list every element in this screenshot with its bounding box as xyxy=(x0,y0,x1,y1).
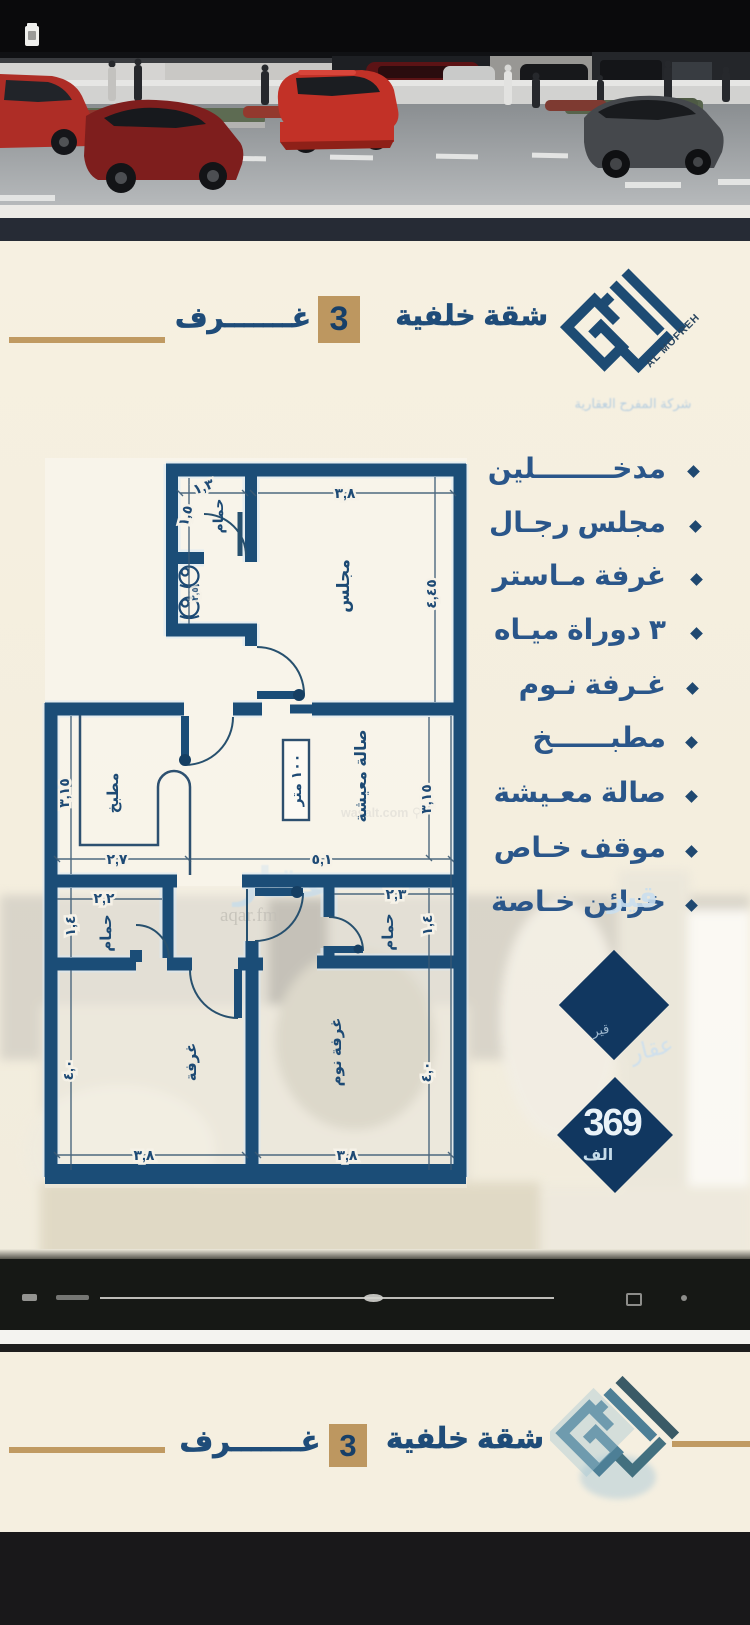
svg-text:حمام: حمام xyxy=(98,914,115,952)
svg-text:١٠٠ متر: ١٠٠ متر xyxy=(288,754,305,808)
svg-text:٣,١٥: ٣,١٥ xyxy=(56,778,72,808)
svg-text:صالة معيشة: صالة معيشة xyxy=(353,729,370,822)
svg-text:٣,١٥: ٣,١٥ xyxy=(418,784,434,814)
svg-text:٥,١: ٥,١ xyxy=(312,851,333,867)
svg-text:حمام: حمام xyxy=(380,913,397,951)
svg-text:١,٤: ١,٤ xyxy=(62,916,78,937)
svg-text:٤,٠: ٤,٠ xyxy=(60,1060,76,1081)
svg-text:٢,٣: ٢,٣ xyxy=(386,886,407,902)
svg-text:٣,٨: ٣,٨ xyxy=(335,485,356,501)
svg-text:٣,٨: ٣,٨ xyxy=(134,1147,155,1163)
svg-text:مجلس: مجلس xyxy=(334,559,353,613)
svg-text:١,٤: ١,٤ xyxy=(419,915,435,936)
svg-text:حمام: حمام xyxy=(210,499,226,534)
svg-text:غرفة: غرفة xyxy=(183,1043,200,1082)
svg-text:٤,٤٥: ٤,٤٥ xyxy=(423,579,439,609)
svg-text:الف: الف xyxy=(583,1147,614,1164)
svg-text:٢,٢: ٢,٢ xyxy=(94,890,115,906)
svg-text:غرفة نوم: غرفة نوم xyxy=(328,1018,345,1087)
svg-text:369: 369 xyxy=(583,1102,641,1144)
svg-text:٤,٠: ٤,٠ xyxy=(418,1062,434,1083)
svg-text:مطبخ: مطبخ xyxy=(105,773,122,814)
svg-text:٣,٨: ٣,٨ xyxy=(337,1147,358,1163)
svg-text:٢,٥: ٢,٥ xyxy=(190,587,200,601)
svg-text:٢,٧: ٢,٧ xyxy=(107,851,128,867)
